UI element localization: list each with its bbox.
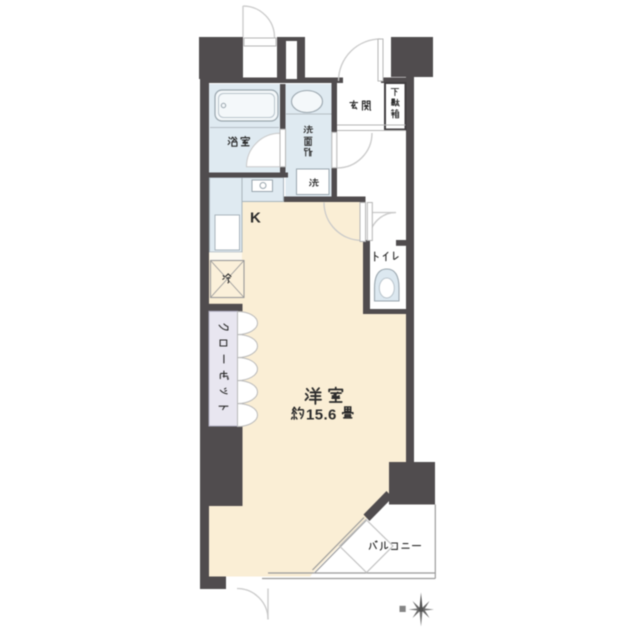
svg-text:K: K bbox=[250, 210, 261, 227]
svg-text:15.6: 15.6 bbox=[306, 407, 337, 424]
